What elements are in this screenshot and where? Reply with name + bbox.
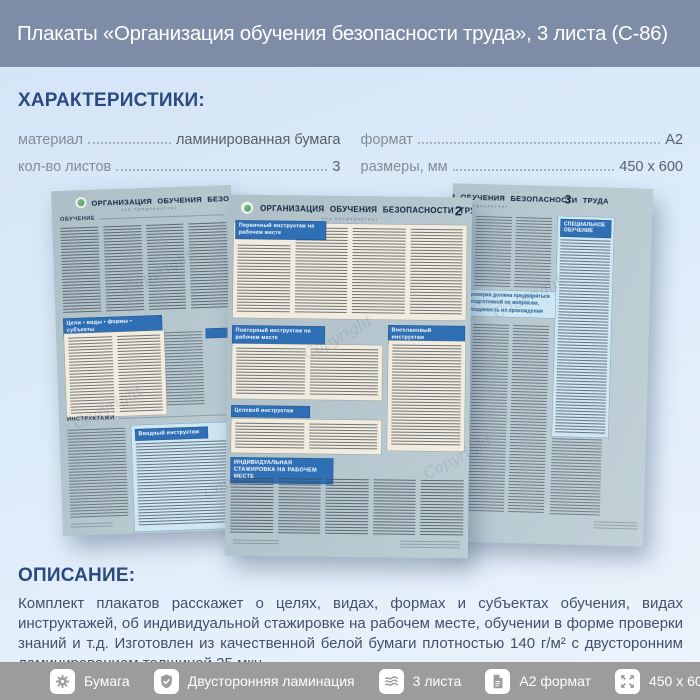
- characteristics-columns: материал ламинированная бумага кол-во ли…: [18, 121, 683, 175]
- poster-colophon: [593, 521, 637, 529]
- feature-label: 450 x 600 мм: [649, 673, 700, 689]
- poster-text-lines: [514, 217, 552, 288]
- poster-colophon: [233, 540, 279, 547]
- characteristic-label: материал: [18, 132, 83, 148]
- poster1-section-obuchenie: ОБУЧЕНИЕ: [60, 211, 224, 223]
- poster-sheet-3: ОРГАНИЗАЦИЯ ОБУЧЕНИЯ БЕЗОПАСНОСТИ ТРУДА …: [443, 183, 653, 546]
- dotted-leader: [418, 142, 660, 144]
- feature-label: Двусторонняя ламинация: [188, 673, 355, 689]
- poster2-section-pervichny: Первичный инструктаж на рабочем месте: [236, 221, 326, 240]
- characteristic-row-format: формат А2: [361, 121, 684, 148]
- poster-text-lines: [67, 428, 128, 520]
- product-card: Плакаты «Организация обучения безопаснос…: [0, 0, 700, 700]
- poster-sheet-2: ОРГАНИЗАЦИЯ ОБУЧЕНИЯ БЕЗОПАСНОСТИ ТРУДА …: [225, 195, 472, 559]
- poster-text-lines: [60, 227, 101, 314]
- poster-text-lines: [235, 423, 304, 450]
- poster2-bottom-columns: [230, 478, 464, 537]
- poster3-number: 3: [564, 192, 571, 206]
- poster-text-lines: [103, 225, 144, 312]
- layers-icon: [379, 669, 404, 694]
- poster-collage: ОРГАНИЗАЦИЯ ОБУЧЕНИЯ БЕЗОПАСНОСТИ ТРУДА …: [0, 168, 700, 566]
- characteristics-heading: ХАРАКТЕРИСТИКИ:: [18, 90, 683, 112]
- section-label: ОБУЧЕНИЕ: [60, 216, 95, 223]
- poster-text-lines: [278, 478, 321, 535]
- poster2-panel-povtorny: [232, 344, 383, 401]
- poster2-number: 2: [455, 203, 462, 218]
- poster3-section-special: СПЕЦИАЛЬНОЕ ОБУЧЕНИЕ: [561, 219, 611, 237]
- poster-sheet-1: ОРГАНИЗАЦИЯ ОБУЧЕНИЯ БЕЗОПАСНОСТИ ТРУДА …: [51, 185, 243, 536]
- feature-format: А2 формат: [485, 669, 591, 694]
- poster-text-lines: [555, 239, 610, 435]
- feature-label: Бумага: [84, 673, 130, 689]
- poster-text-lines: [391, 345, 461, 448]
- poster-text-lines: [117, 335, 163, 412]
- poster2-panel-vneplanovy: [387, 340, 465, 451]
- dotted-leader: [88, 142, 171, 144]
- rule-line: [119, 414, 231, 419]
- poster-text-lines: [474, 216, 512, 287]
- characteristics-right-column: формат А2 размеры, мм 450 x 600: [361, 121, 684, 175]
- characteristic-value: А2: [665, 132, 683, 148]
- poster-text-lines: [550, 438, 602, 517]
- poster1-cream-panel: [64, 330, 167, 417]
- poster2-section-povtorny: Повторный инструктаж на рабочем месте: [232, 326, 324, 345]
- poster-logo-icon: [75, 197, 86, 208]
- poster-text-lines: [294, 227, 348, 315]
- shield-check-icon: [154, 669, 179, 694]
- title-bar: Плакаты «Организация обучения безопаснос…: [0, 0, 700, 67]
- feature-label: 3 листа: [413, 673, 462, 689]
- poster1-lightblue-panel: Вводный инструктаж: [131, 422, 237, 531]
- poster-text-lines: [188, 222, 229, 309]
- characteristic-value: ламинированная бумага: [176, 132, 341, 148]
- description-heading: ОПИСАНИЕ:: [18, 565, 683, 587]
- poster-text-lines: [146, 224, 187, 311]
- poster-text-lines: [136, 440, 233, 527]
- section-label: ИНСТРУКТАЖИ: [67, 415, 115, 423]
- feature-paper: Бумага: [50, 669, 130, 694]
- poster-text-lines: [230, 478, 273, 535]
- poster-text-lines: [352, 228, 406, 316]
- poster-text-lines: [508, 325, 549, 514]
- poster-text-lines: [325, 479, 368, 536]
- poster-text-lines: [409, 229, 463, 317]
- expand-arrows-icon: [615, 669, 640, 694]
- gear-icon: [50, 669, 75, 694]
- poster3-special-panel: СПЕЦИАЛЬНОЕ ОБУЧЕНИЕ: [552, 216, 614, 437]
- feature-label: А2 формат: [519, 673, 591, 689]
- poster2-title: ОРГАНИЗАЦИЯ ОБУЧЕНИЯ БЕЗОПАСНОСТИ ТРУДА: [260, 204, 472, 216]
- feature-bar: Бумага Двусторонняя ламинация 3 листа А2…: [0, 662, 700, 700]
- poster-text-lines: [237, 245, 290, 315]
- characteristics-left-column: материал ламинированная бумага кол-во ли…: [18, 121, 341, 175]
- poster2-panel-celevoy: [231, 419, 381, 455]
- rule-line: [99, 214, 224, 219]
- poster-logo-icon: [241, 202, 253, 214]
- poster-text-lines: [309, 424, 378, 451]
- poster-text-lines: [68, 336, 114, 413]
- poster2-section-celevoy: Целевой инструктаж: [232, 406, 310, 418]
- feature-size: 450 x 600 мм: [615, 669, 700, 694]
- poster1-section-vvodny: Вводный инструктаж: [135, 427, 207, 440]
- description-section: ОПИСАНИЕ: Комплект плакатов расскажет о …: [18, 565, 683, 674]
- poster-text-lines: [309, 349, 378, 397]
- poster-text-lines: [468, 324, 509, 513]
- characteristics-section: ХАРАКТЕРИСТИКИ: материал ламинированная …: [18, 90, 683, 175]
- poster1-text-columns: [60, 222, 229, 314]
- poster-text-lines: [236, 348, 305, 396]
- poster-text-lines: [373, 479, 416, 536]
- feature-sheets: 3 листа: [379, 669, 462, 694]
- poster-text-lines: [164, 331, 205, 406]
- characteristic-label: формат: [361, 132, 413, 148]
- characteristic-row-material: материал ламинированная бумага: [18, 121, 341, 148]
- poster-text-lines: [420, 480, 463, 537]
- feature-lamination: Двусторонняя ламинация: [154, 669, 355, 694]
- poster1-subtitle: (на предприятии): [122, 206, 178, 212]
- poster-colophon: [71, 522, 113, 529]
- document-icon: [485, 669, 510, 694]
- poster-colophon: [400, 541, 460, 549]
- page-title: Плакаты «Организация обучения безопаснос…: [17, 22, 668, 46]
